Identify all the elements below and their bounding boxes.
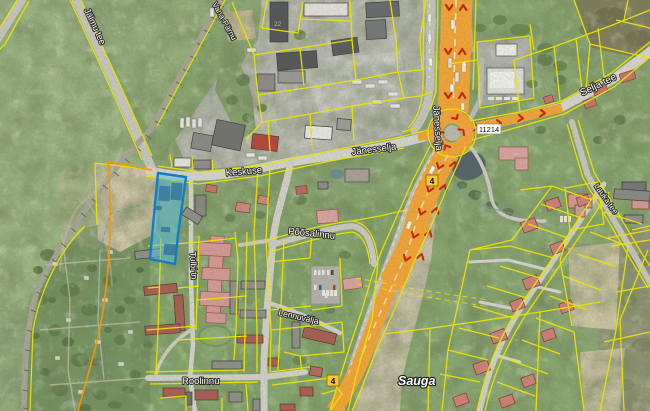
svg-text:Roolinnu: Roolinnu <box>182 376 220 387</box>
svg-text:4: 4 <box>430 176 435 186</box>
svg-text:Tulbi tn: Tulbi tn <box>188 252 199 280</box>
svg-text:Sauga: Sauga <box>398 374 436 388</box>
svg-text:22: 22 <box>274 21 282 28</box>
svg-text:4: 4 <box>331 376 336 386</box>
svg-text:11214: 11214 <box>479 125 499 134</box>
